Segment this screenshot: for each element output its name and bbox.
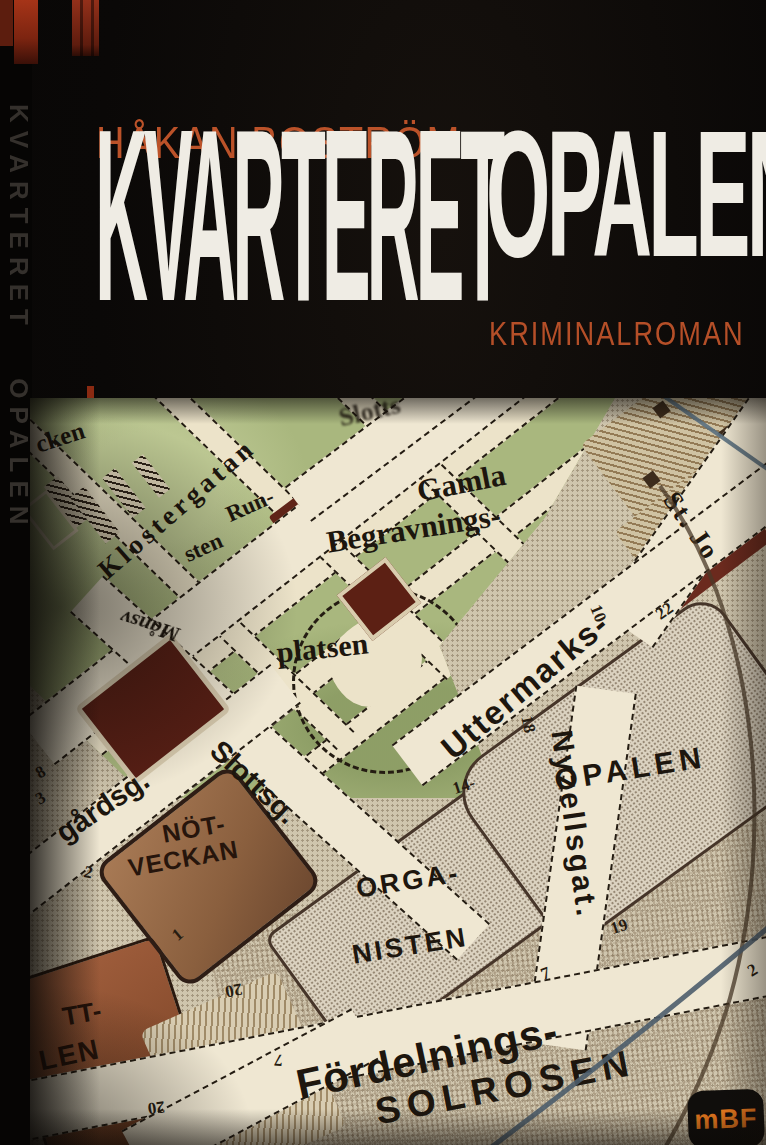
genre-label: KRIMINALROMAN xyxy=(489,314,745,353)
title-word-kvarteret: KVARTERET xyxy=(95,124,501,308)
book-spine: KVARTERET OPALEN xyxy=(0,0,32,1145)
title-word-opalen: OPALEN xyxy=(486,126,766,261)
house-number: 20 xyxy=(146,1096,166,1118)
spine-top-red-patch xyxy=(14,0,38,64)
cover-top-red-patch xyxy=(72,0,99,56)
book-cover: KVARTERET OPALEN HÅKAN BOSTRÖM KVARTERET… xyxy=(0,0,766,1145)
publisher-logo: mBF xyxy=(687,1089,765,1145)
house-number: 7 xyxy=(274,1049,284,1070)
publisher-logo-text: mBF xyxy=(694,1102,758,1135)
map-photo: cken Klostergatan Slotts Run- sten Gamla… xyxy=(30,398,766,1145)
house-number: 3 xyxy=(32,788,49,810)
spine-top-red-patch-dark xyxy=(0,0,13,46)
house-number: 8 xyxy=(32,762,49,784)
